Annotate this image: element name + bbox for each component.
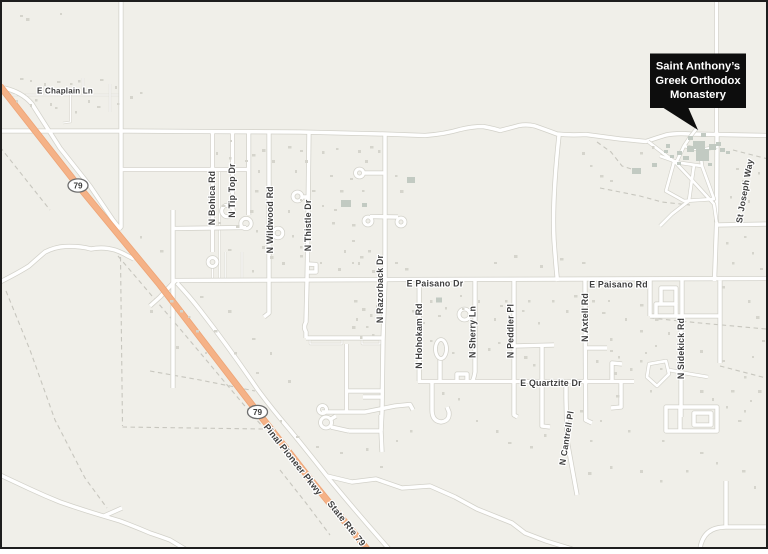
svg-text:79: 79 bbox=[253, 408, 263, 417]
svg-text:N Sherry Ln: N Sherry Ln bbox=[468, 306, 478, 358]
svg-text:N Razorback Dr: N Razorback Dr bbox=[375, 254, 385, 323]
svg-text:N Bohica Rd: N Bohica Rd bbox=[207, 171, 217, 226]
svg-text:E Quartzite Dr: E Quartzite Dr bbox=[520, 378, 582, 388]
svg-text:E Paisano Rd: E Paisano Rd bbox=[589, 280, 648, 290]
svg-text:79: 79 bbox=[73, 181, 83, 190]
svg-text:E Paisano Dr: E Paisano Dr bbox=[407, 279, 464, 289]
svg-text:Saint Anthony’s: Saint Anthony’s bbox=[656, 61, 740, 73]
svg-text:N Axtell Rd: N Axtell Rd bbox=[580, 293, 590, 342]
svg-text:N Peddler Pl: N Peddler Pl bbox=[506, 304, 516, 358]
svg-text:N Hohokam Rd: N Hohokam Rd bbox=[414, 303, 424, 368]
svg-text:N Wildwood Rd: N Wildwood Rd bbox=[265, 186, 275, 253]
svg-text:E Chaplain Ln: E Chaplain Ln bbox=[37, 87, 93, 96]
svg-text:N Tip Top Dr: N Tip Top Dr bbox=[227, 163, 237, 218]
svg-text:Monastery: Monastery bbox=[670, 89, 727, 101]
svg-text:N Sidekick Rd: N Sidekick Rd bbox=[676, 318, 686, 379]
svg-text:N Thistle Dr: N Thistle Dr bbox=[303, 199, 313, 251]
svg-text:Greek Orthodox: Greek Orthodox bbox=[655, 75, 741, 87]
